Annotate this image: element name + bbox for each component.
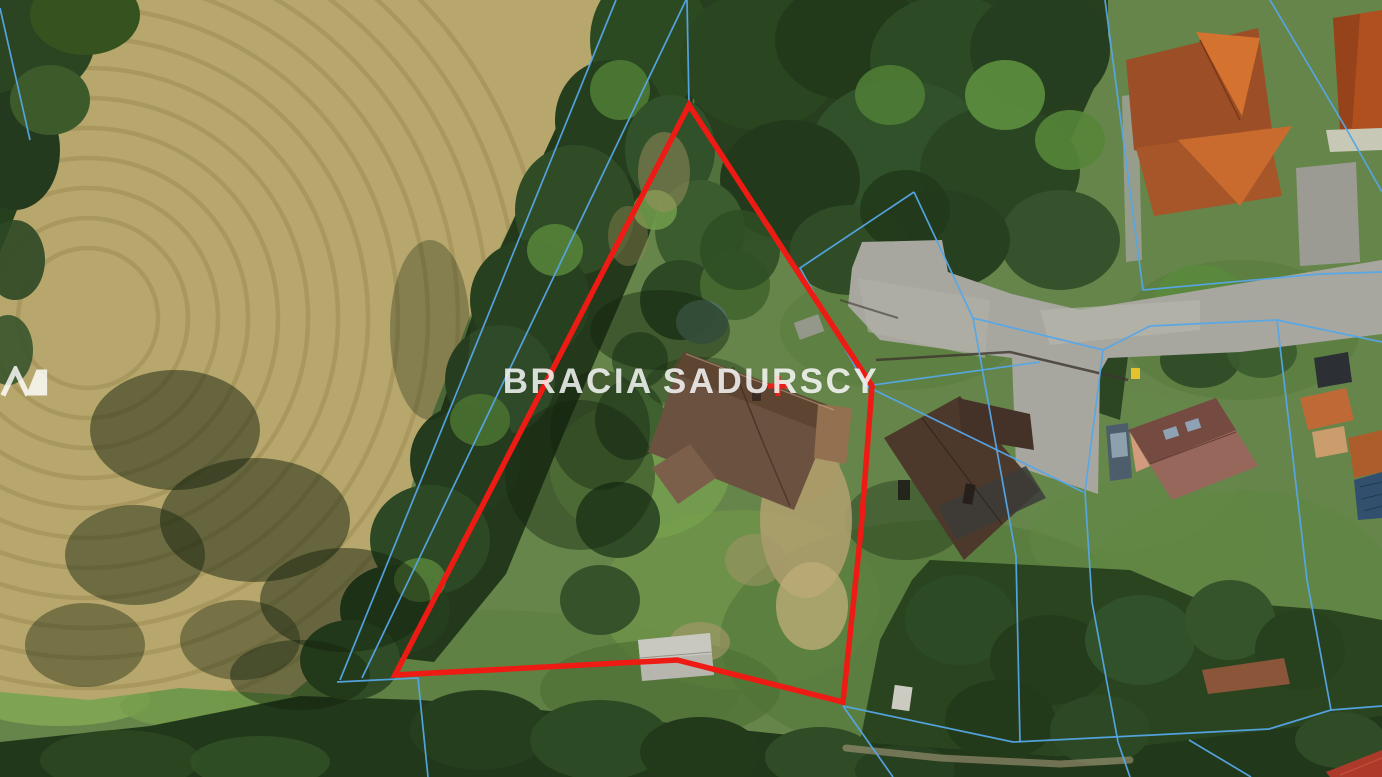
listing-aerial-image: BRACIA SADURSCY xyxy=(0,0,1382,777)
aerial-photo xyxy=(0,0,1382,777)
vehicle-dark-car xyxy=(1314,352,1352,388)
yellow-bin-object xyxy=(1131,368,1140,379)
building-garden-shed xyxy=(638,633,714,681)
roof-window-object xyxy=(898,480,910,500)
vehicle-van xyxy=(1106,423,1132,481)
pallet-object xyxy=(891,685,912,711)
chimney-object xyxy=(752,392,761,401)
